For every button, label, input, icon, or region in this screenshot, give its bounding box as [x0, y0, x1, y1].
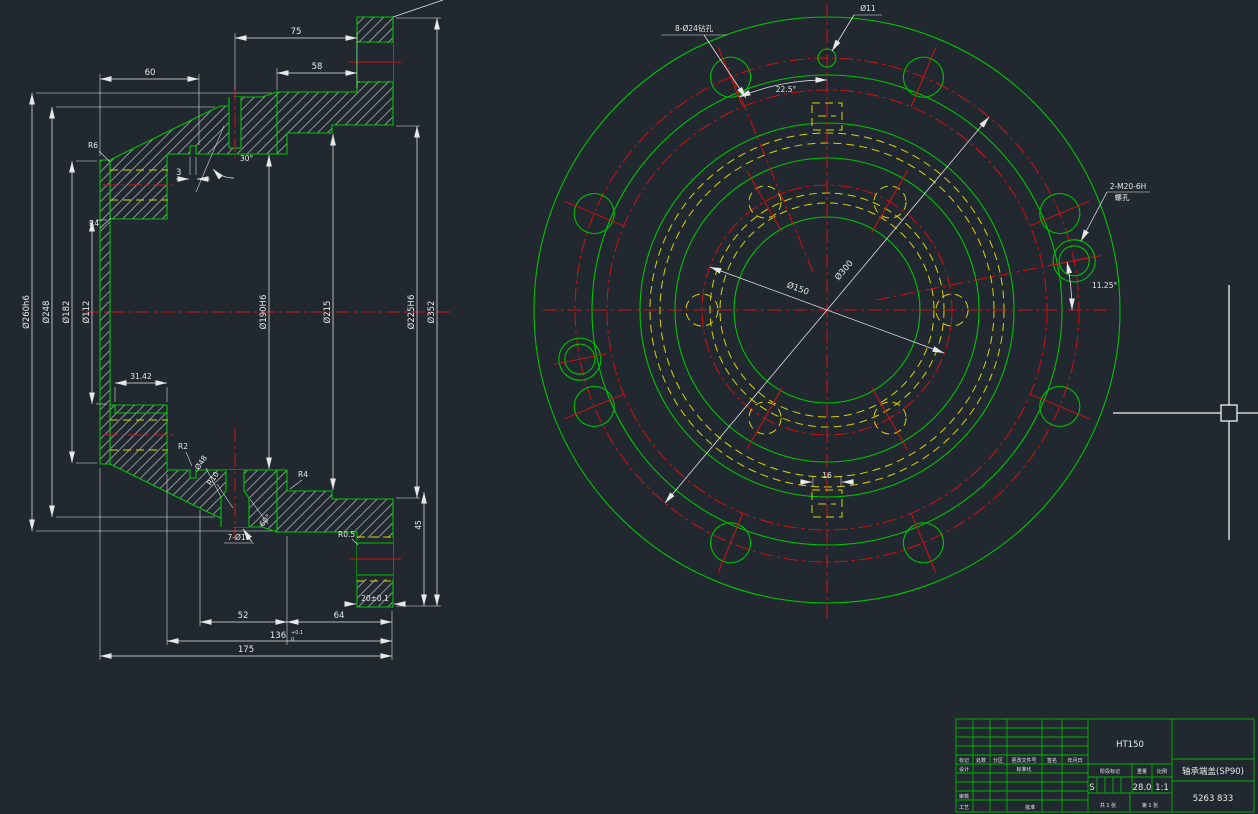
dim-d182: Ø182	[61, 301, 72, 324]
dim-45: 45	[414, 520, 423, 530]
dim-30deg: 30°	[240, 154, 254, 163]
row-design: 设计	[959, 766, 969, 773]
dim-175: 175	[238, 645, 254, 655]
col-doc: 更改文件号	[1011, 757, 1036, 764]
row-process: 工艺	[959, 805, 969, 811]
row-audit: 审核	[959, 793, 969, 800]
dim-3: 3	[176, 168, 181, 178]
col-sign: 签名	[1047, 757, 1057, 764]
dim-52: 52	[238, 611, 249, 621]
label-m20-note: 螺孔	[1115, 192, 1131, 202]
stage-label: 阶段标记	[1100, 768, 1120, 775]
part-name-cell: 轴承端盖(SP90)	[1182, 766, 1244, 777]
pickbox	[1221, 405, 1237, 421]
col-count: 处数	[976, 757, 986, 764]
drawing-canvas[interactable]: 75 58 60 3 30° Ø260h6 Ø248 Ø182 Ø112	[0, 0, 1258, 814]
label-r2: R2	[178, 442, 188, 451]
label-r4-top: R4	[89, 219, 99, 228]
label-8xd24: 8-Ø24钻孔	[675, 23, 713, 33]
dim-58: 58	[312, 62, 323, 72]
label-r4-mid: R4	[298, 470, 308, 479]
label-m20: 2-M20-6H	[1110, 182, 1147, 191]
drawing-number-cell: 5263 833	[1193, 794, 1234, 804]
dim-225deg: 22.5°	[776, 85, 797, 94]
label-7xd18: 7-Ø18	[228, 533, 251, 542]
dim-60: 60	[145, 68, 156, 78]
scale-value: 1:1	[1155, 783, 1169, 793]
dim-d150: Ø150	[785, 280, 810, 298]
title-block: HT150 轴承端盖(SP90) 5263 833 阶段标记 重量 比例 S 2…	[956, 719, 1254, 812]
dim-d112: Ø112	[81, 301, 92, 324]
col-mark: 标记	[959, 757, 969, 764]
dim-d352: Ø352	[426, 301, 437, 324]
col-zone: 分区	[993, 757, 1003, 764]
dim-20: 20±0.1	[361, 594, 389, 603]
stage-value: S	[1089, 783, 1094, 793]
col-date: 年月日	[1067, 757, 1082, 764]
dim-d215: Ø215	[322, 301, 333, 324]
sheet-total: 共 1 张	[1100, 802, 1116, 809]
material-cell: HT150	[1116, 740, 1144, 750]
dim-d260: Ø260h6	[21, 295, 32, 329]
label-d48: Ø48	[193, 453, 209, 471]
weight-value: 28.0	[1133, 783, 1152, 793]
sheet-number: 第 1 张	[1142, 802, 1158, 809]
crosshair-cursor	[1113, 285, 1258, 540]
weight-label: 重量	[1137, 768, 1147, 775]
dim-75: 75	[291, 27, 302, 37]
dim-136-sup: +0.1	[291, 630, 303, 636]
dim-1125deg: 11.25°	[1092, 281, 1117, 290]
dim-d248: Ø248	[41, 301, 52, 324]
dim-136-sub: 0	[291, 637, 294, 643]
row-standardization: 标准化	[1016, 766, 1031, 773]
dim-d300: Ø300	[833, 258, 856, 283]
label-d11: Ø11	[860, 4, 876, 13]
right-view-dimensions: 16 Ø150 Ø300 22.5° 11.25° 8-Ø24钻孔 Ø11 2-…	[661, 4, 1150, 503]
right-view-geometry	[534, 4, 1120, 618]
dim-16: 16	[822, 471, 832, 480]
dim-64: 64	[334, 611, 345, 621]
dim-3142: 31.42	[130, 372, 152, 381]
row-approve: 批准	[1025, 804, 1035, 811]
label-r6: R6	[88, 141, 98, 150]
label-r05: R0.5	[338, 530, 355, 539]
dim-d225: Ø225H6	[406, 295, 417, 330]
dim-136: 136	[270, 631, 286, 641]
dim-d190: Ø190H6	[258, 295, 269, 330]
scale-label: 比例	[1157, 768, 1167, 775]
